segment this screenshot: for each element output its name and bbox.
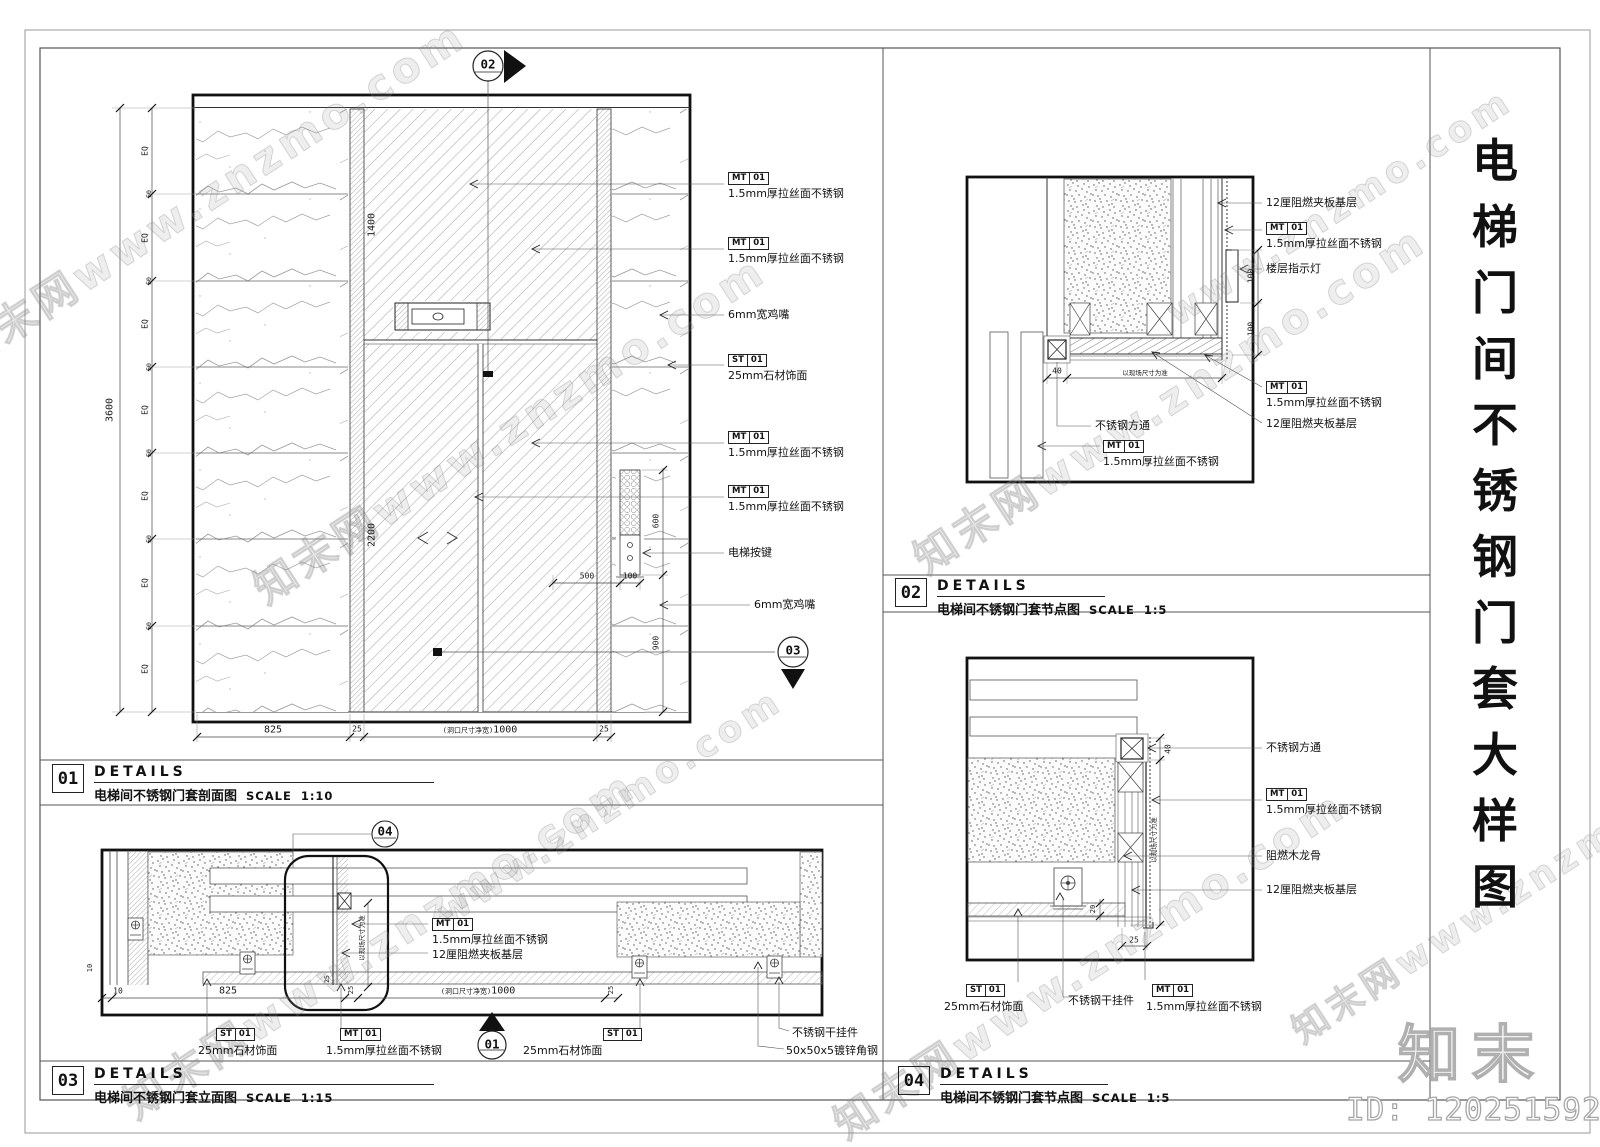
detail-heading: DETAILS: [94, 1066, 434, 1085]
sheet-title-char: 不: [1472, 402, 1518, 448]
dim: 500: [580, 572, 594, 581]
detail-number: 02: [895, 578, 927, 607]
annotation: ST01: [966, 982, 1005, 999]
annotation: MT01 1.5mm厚拉丝面不锈钢: [1103, 438, 1219, 468]
section-marker-01: 01: [484, 1037, 499, 1052]
dim: 25: [1129, 936, 1139, 945]
dim: 1400: [367, 213, 378, 237]
drawing-02-linework: [967, 177, 1262, 482]
title-block-02: 02 DETAILS 电梯间不锈钢门套节点图 SCALE 1:5: [895, 578, 1167, 618]
dim: 50: [145, 277, 153, 285]
annotation: 12厘阻燃夹板基层: [1266, 417, 1357, 430]
scale-label: SCALE: [1092, 1091, 1138, 1105]
dim: 10: [86, 964, 94, 972]
annotation: 不锈钢干挂件: [792, 1026, 858, 1039]
dim: 50: [145, 363, 153, 371]
annotation: 25mm石材饰面: [523, 1044, 602, 1057]
detail-number: 04: [898, 1066, 930, 1095]
dim: EQ: [141, 146, 150, 156]
annotation: 不锈钢方通: [1095, 419, 1150, 432]
sheet-title-char: 套: [1472, 666, 1518, 712]
annotation: ST01: [603, 1026, 642, 1043]
annotation: 1.5mm厚拉丝面不锈钢: [1146, 1000, 1262, 1013]
section-marker-03: 03: [785, 643, 800, 658]
dim: 50: [145, 449, 153, 457]
dim: 825: [264, 725, 282, 736]
drawing-04-linework: [967, 658, 1262, 997]
scale-value: 1:10: [301, 789, 334, 803]
detail-heading: DETAILS: [94, 764, 434, 783]
dim: (洞口尺寸净宽)1000: [443, 725, 518, 736]
sheet-id: ID: 1202515925: [1346, 1092, 1600, 1128]
annotation: 50x50x5镀锌角钢: [786, 1044, 878, 1057]
annotation: MT01 1.5mm厚拉丝面不锈钢: [1266, 379, 1382, 409]
dim: 3600: [105, 398, 116, 422]
annotation: 12厘阻燃夹板基层: [1266, 883, 1357, 896]
dim: 以现场尺寸为准: [356, 915, 366, 961]
dim: 900: [652, 636, 661, 650]
znzmo-logo: 知末: [1398, 1004, 1546, 1094]
annotation: ST01 25mm石材饰面: [728, 352, 807, 382]
dim: 以现场尺寸为准: [1122, 367, 1168, 377]
scale-value: 1:5: [1147, 1091, 1171, 1105]
sheet-title-char: 门: [1472, 270, 1518, 316]
annotation: 不锈钢干挂件: [1068, 994, 1134, 1007]
drawing-01-linework: [112, 50, 808, 742]
annotation: 1.5mm厚拉丝面不锈钢: [326, 1044, 442, 1057]
dim: 25: [607, 986, 615, 994]
dim: 100: [1247, 269, 1256, 283]
dim: 600: [652, 514, 661, 528]
annotation: MT01 1.5mm厚拉丝面不锈钢: [728, 429, 844, 459]
detail-title: 电梯间不锈钢门套剖面图: [94, 785, 237, 804]
detail-marker-04: 04: [377, 824, 392, 839]
annotation: 楼层指示灯: [1266, 262, 1321, 275]
title-block-03: 03 DETAILS 电梯间不锈钢门套立面图 SCALE 1:15: [52, 1066, 434, 1106]
annotation: 12厘阻燃夹板基层: [1266, 196, 1357, 209]
dim: 50: [145, 622, 153, 630]
title-block-01: 01 DETAILS 电梯间不锈钢门套剖面图 SCALE 1:10: [52, 764, 434, 804]
annotation: ST01: [216, 1026, 255, 1043]
dim: 以现场尺寸为准: [1148, 817, 1158, 863]
scale-label: SCALE: [1089, 603, 1135, 617]
sheet-title-char: 梯: [1472, 204, 1518, 250]
dim: 25: [323, 975, 331, 983]
annotation: MT01 1.5mm厚拉丝面不锈钢: [1266, 220, 1382, 250]
scale-label: SCALE: [246, 789, 292, 803]
dim: EQ: [141, 405, 150, 415]
annotation: MT01: [1152, 982, 1193, 999]
annotation: MT01 1.5mm厚拉丝面不锈钢: [432, 916, 548, 946]
detail-number: 01: [52, 764, 84, 793]
detail-heading: DETAILS: [937, 578, 1105, 597]
sheet-title-vertical: 电 梯 门 间 不 锈 钢 门 套 大 样 图: [1432, 48, 1558, 1100]
annotation: 25mm石材饰面: [198, 1044, 277, 1057]
sheet-title-char: 样: [1472, 798, 1518, 844]
detail-title: 电梯间不锈钢门套立面图: [94, 1087, 237, 1106]
annotation: 12厘阻燃夹板基层: [432, 948, 523, 961]
dim: (洞口尺寸净宽)1000: [441, 986, 516, 997]
annotation: MT01 1.5mm厚拉丝面不锈钢: [728, 235, 844, 265]
dim: 2200: [367, 523, 378, 547]
detail-title: 电梯间不锈钢门套节点图: [937, 599, 1080, 618]
dim: 825: [219, 986, 237, 997]
dim: 40: [1164, 744, 1173, 754]
dim: 50: [145, 535, 153, 543]
sheet-title-char: 电: [1472, 138, 1518, 184]
annotation: MT01: [340, 1026, 381, 1043]
dim: 40: [1052, 367, 1062, 376]
sheet-title-char: 大: [1472, 732, 1518, 778]
detail-title: 电梯间不锈钢门套节点图: [940, 1087, 1083, 1106]
title-block-04: 04 DETAILS 电梯间不锈钢门套节点图 SCALE 1:5: [898, 1066, 1170, 1106]
dim: EQ: [141, 319, 150, 329]
detail-heading: DETAILS: [940, 1066, 1108, 1085]
annotation: 电梯按键: [728, 546, 772, 559]
dim: 50: [145, 190, 153, 198]
sheet-title-char: 锈: [1472, 468, 1518, 514]
annotation: MT01 1.5mm厚拉丝面不锈钢: [728, 483, 844, 513]
detail-number: 03: [52, 1066, 84, 1095]
sheet-title-char: 图: [1472, 864, 1518, 910]
annotation: 不锈钢方通: [1266, 741, 1321, 754]
dim: EQ: [141, 578, 150, 588]
dim: EQ: [141, 664, 150, 674]
scale-value: 1:5: [1144, 603, 1168, 617]
sheet-title-char: 间: [1472, 336, 1518, 382]
dim: EQ: [141, 491, 150, 501]
sheet-title-char: 门: [1472, 600, 1518, 646]
annotation: MT01 1.5mm厚拉丝面不锈钢: [1266, 786, 1382, 816]
annotation: MT01 1.5mm厚拉丝面不锈钢: [728, 170, 844, 200]
annotation: 阻燃木龙骨: [1266, 849, 1321, 862]
annotation: 25mm石材饰面: [944, 1000, 1023, 1013]
annotation: 6mm宽鸡嘴: [754, 598, 815, 611]
scale-value: 1:15: [301, 1091, 334, 1105]
drawing-sheet: 知末网www.znzmo.com 知末网www.znzmo.com www.zn…: [0, 0, 1600, 1147]
dim: 25: [352, 725, 362, 734]
dim: 25: [347, 986, 355, 994]
sheet-title-char: 钢: [1472, 534, 1518, 580]
dim: 100: [1247, 322, 1256, 336]
dim: 20: [1089, 905, 1097, 913]
section-marker-02: 02: [480, 57, 495, 72]
annotation: 6mm宽鸡嘴: [728, 308, 789, 321]
dim: 25: [599, 725, 609, 734]
scale-label: SCALE: [246, 1091, 292, 1105]
dim: EQ: [141, 233, 150, 243]
dim: 100: [623, 572, 637, 581]
dim: 10: [113, 987, 123, 996]
